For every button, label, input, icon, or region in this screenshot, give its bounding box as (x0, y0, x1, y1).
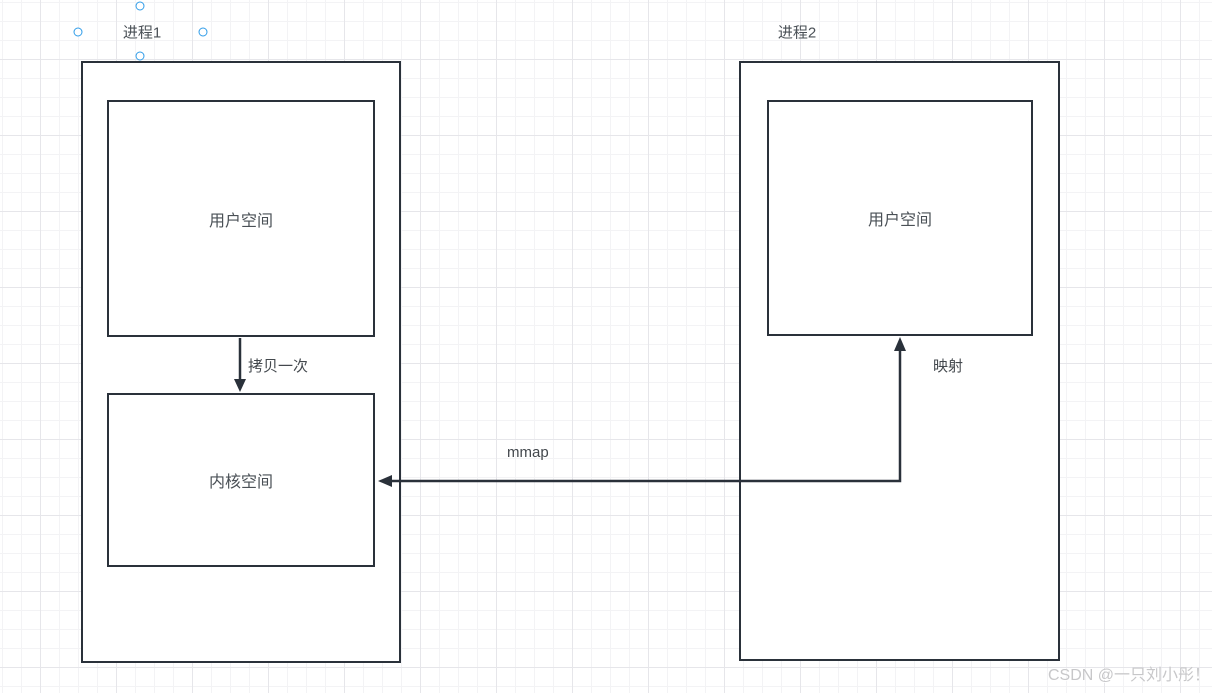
map-arrow-label[interactable]: 映射 (933, 355, 963, 376)
selection-handle-top[interactable] (136, 2, 145, 11)
csdn-watermark: CSDN @一只刘小彤！ (1048, 661, 1210, 685)
diagram-canvas: 用户空间 内核空间 用户空间 进程1 进程2 拷贝一次 mmap 映射 CSDN… (0, 0, 1212, 693)
process2-user-space-label: 用户空间 (868, 206, 932, 230)
selection-handle-right[interactable] (199, 28, 208, 37)
process2-user-space-box[interactable]: 用户空间 (767, 100, 1033, 336)
process1-kernel-space-label: 内核空间 (209, 468, 273, 492)
selection-handle-left[interactable] (74, 28, 83, 37)
process1-kernel-space-box[interactable]: 内核空间 (107, 393, 375, 567)
process2-title[interactable]: 进程2 (778, 22, 816, 43)
process1-title[interactable]: 进程1 (123, 22, 161, 43)
mmap-arrow-label[interactable]: mmap (507, 444, 549, 461)
process1-user-space-box[interactable]: 用户空间 (107, 100, 375, 337)
copy-arrow-label[interactable]: 拷贝一次 (248, 355, 308, 376)
process1-user-space-label: 用户空间 (209, 207, 273, 231)
selection-handle-bottom[interactable] (136, 52, 145, 61)
